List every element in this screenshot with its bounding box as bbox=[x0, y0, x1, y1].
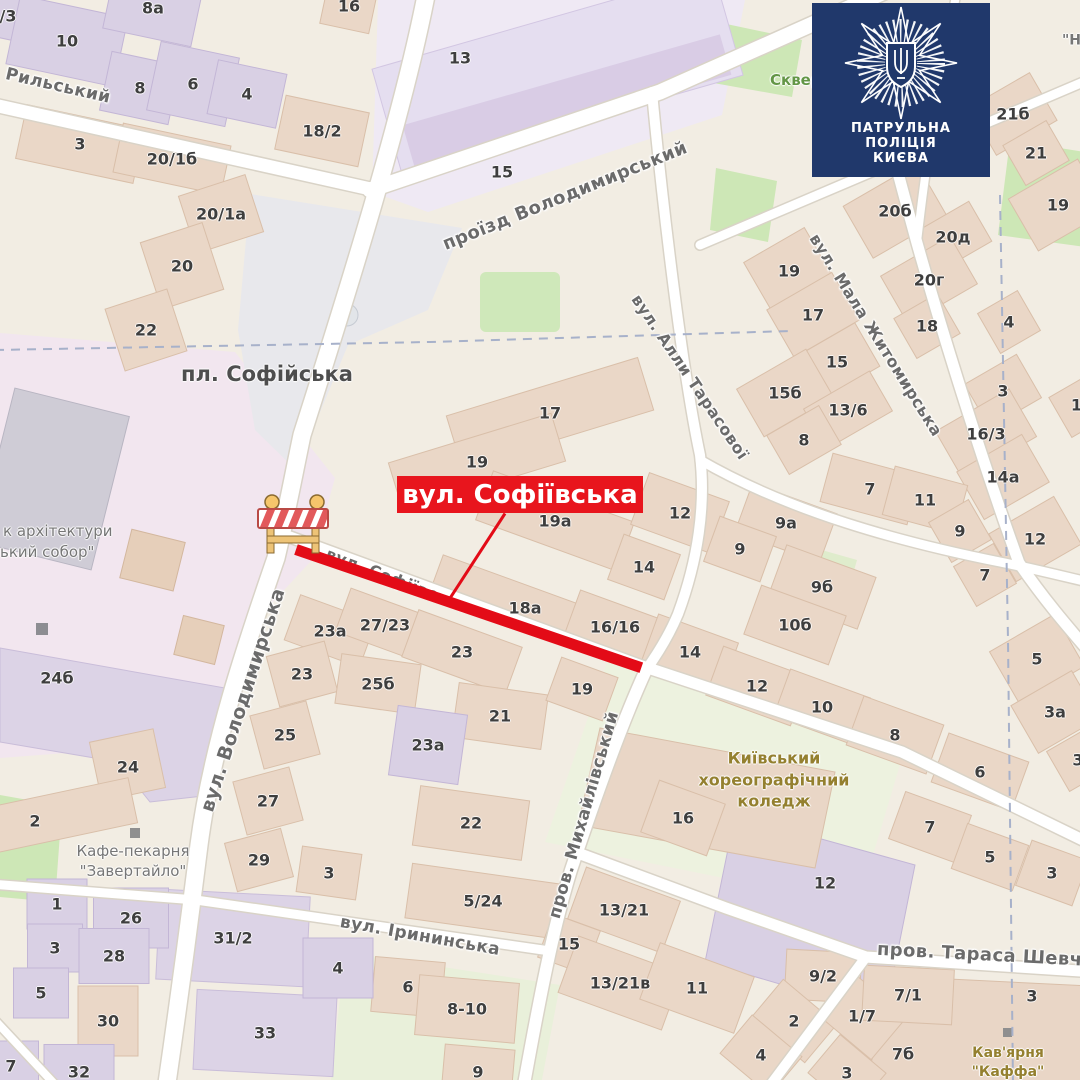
house-number: 14а bbox=[986, 468, 1019, 487]
police-star-icon bbox=[812, 3, 990, 125]
poi-label-line: хореографічний bbox=[698, 769, 849, 791]
poi-label: Кав'ярня"Каффа" bbox=[972, 1044, 1045, 1080]
house-number: 14 bbox=[633, 558, 655, 577]
street-label: Рильський bbox=[3, 64, 112, 108]
house-number: 16/3 bbox=[966, 425, 1005, 444]
house-number: 24 bbox=[117, 758, 139, 777]
house-number: 23 bbox=[451, 643, 473, 662]
house-number: 1 bbox=[51, 895, 62, 914]
house-number: 3 bbox=[74, 135, 85, 154]
house-number: 19 bbox=[778, 262, 800, 281]
house-number: 9а bbox=[775, 514, 797, 533]
house-number: 5 bbox=[35, 984, 46, 1003]
house-number: 2 bbox=[29, 812, 40, 831]
poi-label: Кафе-пекарня"Завертайло" bbox=[77, 841, 190, 882]
poi-label-line: "Завертайло" bbox=[77, 861, 190, 881]
house-number: 21 bbox=[1025, 144, 1047, 163]
house-number: 8 bbox=[134, 79, 145, 98]
house-number: 6 bbox=[187, 75, 198, 94]
house-number: 27/23 bbox=[360, 616, 410, 635]
house-number: 3 bbox=[1046, 864, 1057, 883]
house-number: 13 bbox=[1071, 396, 1080, 415]
house-number: 22 bbox=[135, 321, 157, 340]
house-number: 19 bbox=[466, 453, 488, 472]
house-number: 4 bbox=[332, 959, 343, 978]
house-number: 6 bbox=[402, 978, 413, 997]
house-number: 11 bbox=[686, 979, 708, 998]
house-number: 20/1б bbox=[147, 150, 197, 169]
street-label: пров. Михайлівський bbox=[545, 709, 623, 921]
house-number: 19 bbox=[571, 680, 593, 699]
house-number: 18/2 bbox=[302, 122, 341, 141]
street-label: вул. Володимирська bbox=[196, 585, 289, 814]
house-number: 19а bbox=[538, 512, 571, 531]
house-number: 4 bbox=[241, 85, 252, 104]
house-number: 16/16 bbox=[590, 618, 640, 637]
house-number: 15б bbox=[768, 384, 801, 403]
map-canvas[interactable]: /3108а8641618/2320/1б20/1а2022131521б211… bbox=[0, 0, 1080, 1080]
house-number: 2 bbox=[788, 1012, 799, 1031]
house-number: 1/7 bbox=[848, 1007, 876, 1026]
house-number: 3 bbox=[841, 1064, 852, 1080]
house-number: 5 bbox=[984, 848, 995, 867]
house-number: 3 bbox=[1026, 987, 1037, 1006]
street-label: проїзд Володимирський bbox=[440, 137, 691, 255]
poi-label-line: Кав'ярня bbox=[972, 1044, 1045, 1063]
house-number: 5/24 bbox=[463, 892, 502, 911]
badge-line-1: ПАТРУЛЬНА bbox=[851, 121, 951, 136]
poi-label-line: к архітектури bbox=[3, 521, 113, 541]
house-number: 25б bbox=[361, 675, 394, 694]
house-number: 13/6 bbox=[828, 401, 867, 420]
house-number: 9 bbox=[734, 540, 745, 559]
house-number: 9б bbox=[811, 578, 833, 597]
house-number: 20г bbox=[914, 271, 945, 290]
poi-label-line: пл. Софійська bbox=[181, 360, 353, 388]
house-number: 8-10 bbox=[447, 1000, 487, 1019]
poi-label: ький собор" bbox=[0, 542, 94, 562]
poi-label-line: коледж bbox=[698, 791, 849, 813]
house-number: 6 bbox=[974, 763, 985, 782]
house-number: 20д bbox=[935, 228, 970, 247]
poi-label-line: Київський bbox=[698, 748, 849, 770]
house-number: 8 bbox=[889, 726, 900, 745]
house-number: 17 bbox=[539, 404, 561, 423]
house-number: 9 bbox=[954, 522, 965, 541]
house-number: 7 bbox=[5, 1057, 16, 1076]
house-number: 9 bbox=[472, 1063, 483, 1080]
house-number: 17 bbox=[802, 306, 824, 325]
house-number: 21 bbox=[489, 707, 511, 726]
poi-label: к архітектури bbox=[3, 521, 113, 541]
house-number: 23а bbox=[411, 736, 444, 755]
poi-label: пл. Софійська bbox=[181, 360, 353, 388]
house-number: 15 bbox=[826, 353, 848, 372]
house-number: 20б bbox=[878, 202, 911, 221]
house-number: 3 bbox=[1072, 751, 1080, 770]
house-number: 20/1а bbox=[196, 205, 246, 224]
house-number: 10 bbox=[56, 32, 78, 51]
poi-label: "Н bbox=[1062, 32, 1080, 51]
street-label: вул. Ірининська bbox=[338, 912, 501, 960]
house-number: 3 bbox=[323, 864, 334, 883]
house-number: 20 bbox=[171, 257, 193, 276]
house-number: 13/21в bbox=[590, 974, 651, 993]
house-number: 11 bbox=[914, 491, 936, 510]
house-number: 28 bbox=[103, 947, 125, 966]
house-number: 15 bbox=[491, 163, 513, 182]
house-number: 31/2 bbox=[213, 929, 252, 948]
house-number: 4 bbox=[755, 1046, 766, 1065]
house-number: 19 bbox=[1047, 196, 1069, 215]
house-number: 30 bbox=[97, 1012, 119, 1031]
house-number: 7/1 bbox=[894, 986, 922, 1005]
street-label: пров. Тараса Шевченка bbox=[876, 939, 1080, 973]
house-number: 22 bbox=[460, 814, 482, 833]
house-number: 9/2 bbox=[809, 967, 837, 986]
house-number: 7 bbox=[864, 480, 875, 499]
police-badge: ПАТРУЛЬНА ПОЛІЦІЯ КИЄВА bbox=[812, 3, 990, 177]
house-number: 29 bbox=[248, 851, 270, 870]
house-number: 13/21 bbox=[599, 901, 649, 920]
house-number: 23а bbox=[313, 622, 346, 641]
poi-label: Київськийхореографічнийколедж bbox=[698, 748, 849, 813]
house-number: 5 bbox=[1031, 650, 1042, 669]
house-number: 4 bbox=[1003, 313, 1014, 332]
house-number: 7 bbox=[924, 818, 935, 837]
poi-label-line: Кафе-пекарня bbox=[77, 841, 190, 861]
house-number: 10б bbox=[778, 616, 811, 635]
house-number: 3а bbox=[1044, 703, 1066, 722]
poi-label-line: ький собор" bbox=[0, 542, 94, 562]
house-number: 10 bbox=[811, 698, 833, 717]
road-barrier-icon bbox=[250, 490, 334, 562]
street-label: вул. Алли Тарасової bbox=[628, 291, 753, 463]
closure-banner: вул. Софіївська bbox=[397, 476, 643, 513]
house-number: 21б bbox=[996, 105, 1029, 124]
house-number: /3 bbox=[0, 7, 16, 26]
house-number: 7 bbox=[979, 566, 990, 585]
house-number: 18 bbox=[916, 317, 938, 336]
house-number: 32 bbox=[68, 1063, 90, 1080]
house-number: 12 bbox=[746, 677, 768, 696]
house-number: 16 bbox=[338, 0, 360, 16]
house-number: 14 bbox=[679, 643, 701, 662]
badge-line-2: ПОЛІЦІЯ bbox=[865, 136, 936, 151]
house-number: 12 bbox=[669, 504, 691, 523]
house-number: 12 bbox=[814, 874, 836, 893]
house-number: 23 bbox=[291, 665, 313, 684]
house-number: 26 bbox=[120, 909, 142, 928]
poi-label-line: "Каффа" bbox=[972, 1063, 1045, 1080]
house-number: 16 bbox=[672, 809, 694, 828]
house-number: 3 bbox=[49, 939, 60, 958]
house-number: 15 bbox=[558, 935, 580, 954]
badge-line-3: КИЄВА bbox=[873, 151, 929, 166]
house-number: 24б bbox=[40, 669, 73, 688]
house-number: 7б bbox=[892, 1045, 914, 1064]
poi-label-line: "Н bbox=[1062, 32, 1080, 51]
house-number: 8 bbox=[798, 431, 809, 450]
house-number: 13 bbox=[449, 49, 471, 68]
house-number: 8а bbox=[142, 0, 164, 18]
house-number: 33 bbox=[254, 1024, 276, 1043]
house-number: 18а bbox=[508, 599, 541, 618]
house-number: 25 bbox=[274, 726, 296, 745]
house-number: 27 bbox=[257, 792, 279, 811]
house-number: 12 bbox=[1024, 530, 1046, 549]
house-number: 3 bbox=[997, 382, 1008, 401]
